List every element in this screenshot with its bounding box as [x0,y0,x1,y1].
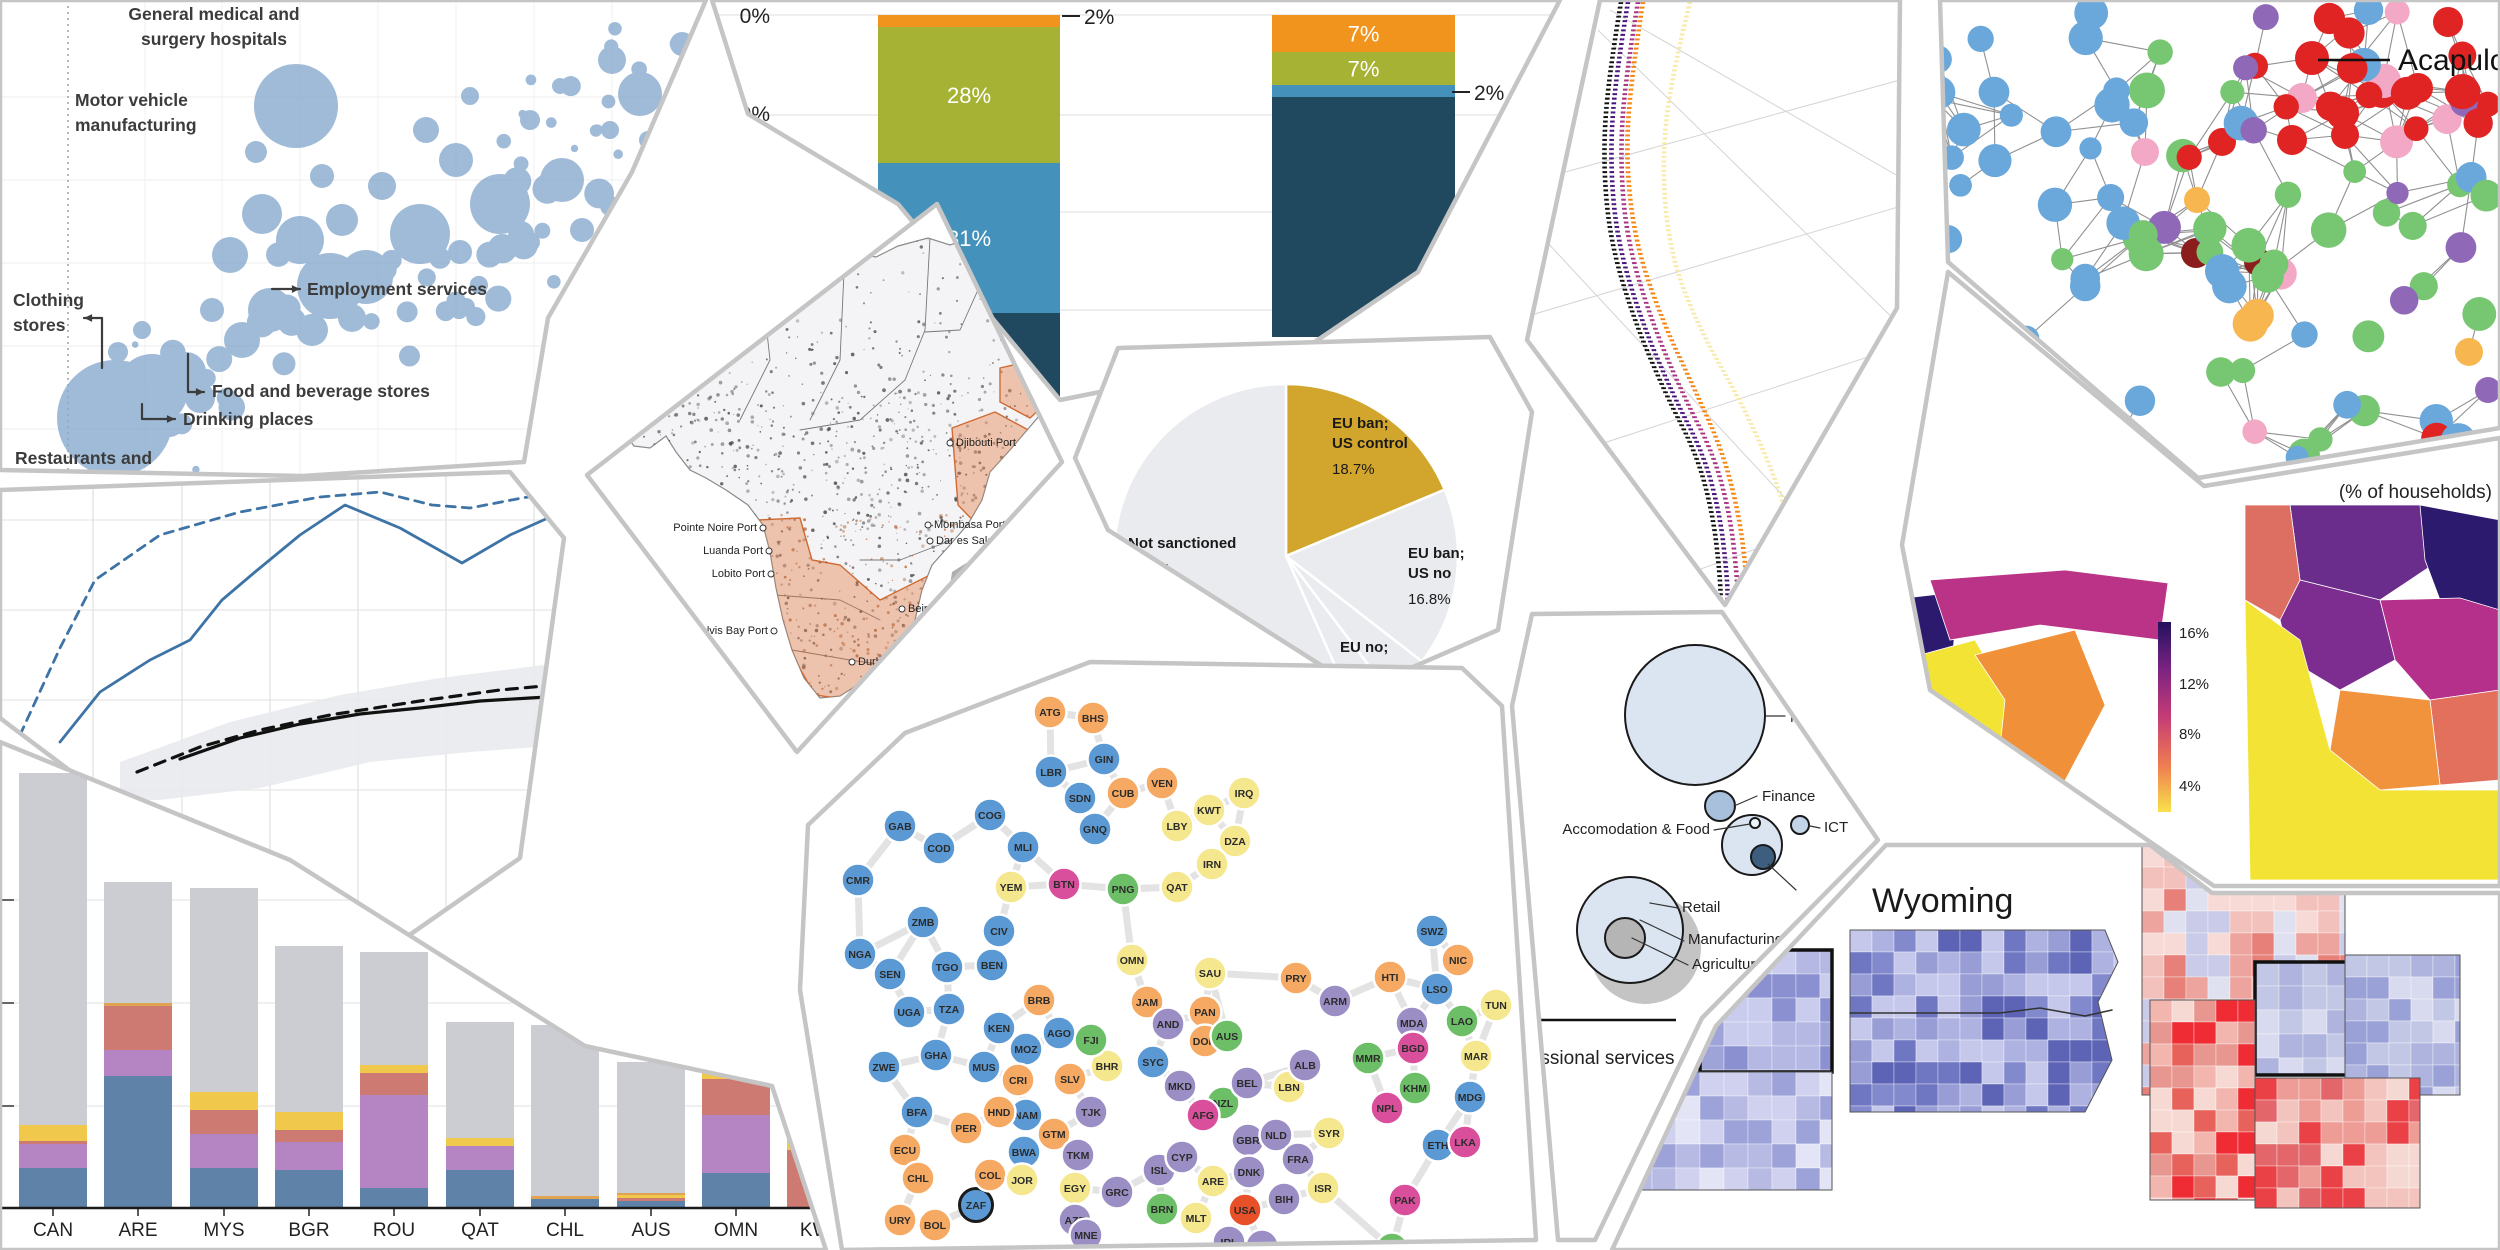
segment-label: 7% [1348,57,1380,82]
node-label: MLT [1186,1213,1207,1225]
bar-segment [531,1196,599,1199]
x-label: CHL [546,1220,584,1241]
highlight-speckle [856,724,858,726]
network-node [2051,248,2073,270]
highlight-speckle [994,571,996,573]
network-node [1978,144,2011,177]
bar-segment [275,1170,343,1208]
network-node [2253,4,2279,30]
node-label: FJI [1083,1035,1098,1047]
highlight-speckle [911,635,914,638]
highlight-speckle [910,690,912,692]
node-label: BHS [1082,713,1104,725]
node-label: USA [1234,1205,1257,1217]
node-label: PRY [1285,973,1306,985]
highlight-speckle [1006,636,1010,640]
network-node [2070,271,2100,301]
highlight-speckle [916,531,918,533]
network-node [2337,53,2368,84]
cell-background [1527,0,1900,605]
sector-bubble [1750,818,1760,828]
network-node [2475,377,2500,403]
highlight-speckle [960,654,963,657]
node-label: HTI [1382,972,1399,984]
highlight-speckle [869,518,871,520]
bubble [584,179,614,209]
highlight-speckle [919,533,921,535]
node-label: IRN [1203,859,1221,871]
highlight-speckle [867,633,869,635]
bubble [631,61,647,77]
bar-segment [702,1040,770,1053]
bubble [363,313,379,329]
bubble [272,352,295,375]
bar-segment [531,1199,599,1208]
legend-tick: 12% [2179,676,2209,693]
bubble [708,39,722,53]
network-label: Acapulco [2398,44,2500,77]
bubble [613,149,623,159]
bar-segment [446,1138,514,1146]
bar-segment [275,946,343,1112]
x-label: OMN [714,1220,758,1241]
chart-title: (% of households) [2339,482,2492,503]
bar-segment [446,1170,514,1208]
network-node [2242,419,2267,444]
highlight-speckle [945,514,948,517]
legend-tick: 4% [2179,778,2201,795]
network-node [2326,96,2359,129]
highlight-speckle [786,526,789,529]
highlight-speckle [917,639,920,642]
highlight-speckle [892,623,895,626]
highlight-speckle [922,677,924,679]
node-label: MKD [1168,1081,1192,1093]
node-label: MOZ [1014,1044,1038,1056]
highlight-speckle [870,592,872,594]
node-label: BIH [1275,1194,1293,1206]
network-node [2386,182,2408,204]
highlight-speckle [866,648,869,651]
node-label: PAN [1194,1007,1215,1019]
x-label: CAN [33,1220,73,1241]
highlight-speckle [923,674,924,675]
node-label: TGO [936,962,959,974]
bar-segment [190,888,258,1092]
highlight-speckle [859,520,861,522]
node-label: ECU [894,1145,916,1157]
node-label: BEN [981,960,1003,972]
annotation: surgery hospitals [141,29,287,49]
node-label: DNK [1238,1167,1261,1179]
highlight-speckle [867,721,869,723]
network-node [2464,108,2493,137]
node-label: HND [988,1107,1011,1119]
highlight-speckle [991,667,993,669]
highlight-speckle [815,644,818,647]
bar-segment [19,1141,87,1144]
country-border [668,300,702,392]
segment-label: 7% [1348,22,1380,47]
node-label: BRB [1028,995,1051,1007]
highlight-speckle [877,605,880,608]
highlight-speckle [823,623,827,627]
port-label: Luanda Port [703,545,763,557]
port-dot [760,525,766,531]
network-node [2120,108,2148,136]
highlight-speckle [1004,572,1007,575]
highlight-speckle [834,614,837,617]
bar-segment [190,1134,258,1168]
bubble [242,194,282,234]
highlight-speckle [977,625,978,626]
highlight-speckle [848,708,851,711]
bubble [570,218,594,242]
node-label: AGO [1047,1028,1071,1040]
bar-segment [275,1130,343,1142]
network-node [2220,80,2244,104]
node-label: QAT [1166,882,1188,894]
bar-segment [702,1173,770,1208]
node-label: KHM [1403,1083,1427,1095]
bar-segment [446,1146,514,1170]
sector-bubble [1751,845,1775,869]
node-label: SEN [879,969,901,981]
highlight-speckle [864,697,868,701]
bubble [133,321,151,339]
highlight-speckle [808,604,811,607]
highlight-speckle [807,536,809,538]
port-dot [925,522,931,528]
highlight-speckle [911,563,913,565]
node-label: GHA [924,1050,948,1062]
sector-label: Retail [1682,899,1720,916]
highlight-speckle [790,526,792,528]
bar-segment [702,1115,770,1173]
node-label: SWZ [1420,926,1444,938]
bubble [448,240,472,264]
highlight-speckle [965,624,966,625]
pie-value: 18.7% [1332,461,1375,478]
port-dot [771,628,777,634]
map-title: Wyoming [1872,882,2013,920]
pie-label: EU ban; [1408,545,1465,562]
highlight-speckle [992,626,994,628]
node-label: SDN [1069,793,1091,805]
bar-segment [104,1050,172,1076]
highlight-speckle [855,707,856,708]
highlight-speckle [966,689,970,693]
highlight-speckle [931,676,933,678]
bubble [160,340,186,366]
highlight-speckle [821,688,823,690]
highlight-speckle [798,566,800,568]
highlight-speckle [803,649,806,652]
network-node [2343,160,2366,183]
network-node [2233,306,2268,341]
bubble [132,341,139,348]
highlight-speckle [891,718,894,721]
sector-bubble [1605,918,1645,958]
county-tiles [2255,1078,2431,1210]
highlight-speckle [954,622,957,625]
bar-segment [19,1144,87,1168]
highlight-speckle [809,557,812,560]
highlight-speckle [882,524,884,526]
highlight-speckle [830,664,833,667]
highlight-speckle [798,539,801,542]
sector-label: ICT [1824,819,1848,836]
node-label: COG [978,810,1002,822]
highlight-speckle [895,527,898,530]
node-label: GIN [1095,754,1114,766]
highlight-speckle [890,604,892,606]
node-label: ALB [1294,1060,1316,1072]
node-label: ZWE [872,1062,895,1074]
highlight-speckle [809,682,811,684]
highlight-speckle [904,691,907,694]
bubble [496,134,511,149]
highlight-speckle [832,655,833,656]
highlight-speckle [903,578,907,582]
network-node [2274,94,2299,119]
bubble [413,117,439,143]
bar-segment [275,1112,343,1130]
bar-segment [1272,85,1455,97]
highlight-speckle [903,598,905,600]
network-node [2291,321,2317,347]
highlight-speckle [922,636,924,638]
network-node [2446,232,2477,263]
port-dot [899,606,905,612]
highlight-speckle [921,544,924,547]
bar-segment [104,1003,172,1006]
bar-segment [360,1073,428,1095]
network-node [1924,45,1952,73]
highlight-speckle [972,582,974,584]
highlight-speckle [886,563,888,565]
network-node [2295,41,2329,75]
highlight-speckle [824,686,825,687]
highlight-speckle [969,568,971,570]
cell-distribution-curves [1480,0,1905,620]
highlight-speckle [782,531,783,532]
bar-segment [1272,97,1455,337]
node-label: KEN [988,1023,1010,1035]
highlight-speckle [952,628,955,631]
segment-label: 28% [947,83,991,108]
highlight-speckle [980,593,982,595]
bubble [532,174,562,204]
bubble [429,247,450,268]
node-label: SAU [1199,968,1221,980]
bubble [436,301,456,321]
node-label: BRN [1151,1204,1174,1216]
bubble [368,172,396,200]
network-node [1947,113,1981,147]
pie-value: 16.8% [1408,591,1451,608]
callout-label: 2% [1084,6,1114,29]
node-label: TKM [1067,1150,1090,1162]
edge [1938,59,1939,92]
highlight-speckle [789,618,792,621]
highlight-speckle [966,603,968,605]
highlight-speckle [843,535,845,537]
bubble [170,374,194,398]
highlight-speckle [787,608,789,610]
node-label: MMR [1355,1053,1380,1065]
highlight-speckle [924,676,926,678]
node-label: BFA [907,1107,928,1119]
highlight-speckle [885,646,888,649]
bar-segment [531,1025,599,1196]
highlight-speckle [833,630,835,632]
network-node [2404,116,2429,141]
network-node [2079,137,2101,159]
node-label: BHR [1096,1061,1119,1073]
pie-label: US control [1332,435,1408,452]
node-label: SYC [1142,1057,1164,1069]
annotation: Employment services [307,279,487,299]
highlight-speckle [954,698,956,700]
highlight-speckle [989,567,992,570]
node-label: MLI [1014,842,1032,854]
node-label: TUN [1485,1000,1507,1012]
highlight-speckle [788,583,791,586]
network-node [2177,145,2202,170]
highlight-speckle [758,717,761,720]
annotation: General medical and [128,4,299,24]
bubble [397,301,418,322]
node-label: MAR [1464,1051,1488,1063]
edge [1934,92,1939,99]
bubble [618,72,662,116]
network-node [2000,104,2023,127]
bubble [568,89,574,95]
highlight-speckle [941,516,943,518]
bar-segment [104,882,172,1003]
highlight-speckle [844,607,846,609]
highlight-speckle [955,707,956,708]
highlight-speckle [940,619,942,621]
bar-segment [19,1168,87,1208]
bar-segment [19,773,87,1125]
node-label: CRI [1009,1075,1027,1087]
highlight-speckle [855,520,857,522]
highlight-speckle [924,653,925,654]
highlight-speckle [932,674,934,676]
highlight-speckle [904,566,907,569]
cell-industry-bubbles: General medical andsurgery hospitalsMoto… [0,0,723,510]
network-node [1922,76,1955,109]
highlight-speckle [970,679,972,681]
bubble [476,242,502,268]
bubble [338,304,366,332]
bubble [273,295,300,322]
highlight-speckle [850,648,852,650]
highlight-speckle [862,618,865,621]
bubble [604,39,618,53]
node-label: BGD [1401,1043,1425,1055]
network-node [1979,77,2010,108]
highlight-speckle [898,690,900,692]
bar-segment [878,15,1060,27]
bubble [372,257,397,282]
bubble [547,275,561,289]
annotation: Restaurants and [15,448,152,468]
bubble [206,346,232,372]
network-node [2097,184,2124,211]
bubble [212,237,248,273]
county-tiles [2150,1000,2260,1220]
network-node [2131,138,2159,166]
highlight-speckle [935,707,936,708]
highlight-speckle [814,636,815,637]
node-label: GRC [1105,1187,1129,1199]
bubble [602,95,616,109]
bar-segment [617,1193,685,1195]
bubble [485,286,511,312]
x-label: MYS [203,1220,244,1241]
x-label: ROU [373,1220,415,1241]
highlight-speckle [822,516,823,517]
highlight-speckle [821,543,822,544]
node-label: ISR [1314,1183,1332,1195]
port-label: Mombasa Port [934,519,1006,531]
highlight-speckle [990,651,992,653]
highlight-speckle [823,540,824,541]
bar-segment [190,1092,258,1110]
annotation: manufacturing [75,115,197,135]
annotation: stores [13,315,66,335]
node-label: LBY [1167,821,1188,833]
network-node [2433,7,2463,37]
highlight-speckle [824,598,826,600]
highlight-speckle [971,654,973,656]
node-label: MDA [1400,1018,1424,1030]
node-label: COD [927,843,951,855]
node-label: AFG [1192,1110,1214,1122]
node-label: GNQ [1083,824,1107,836]
node-label: NPL [1377,1103,1399,1115]
pie-label: EU no; [1340,639,1388,656]
bubble [399,345,420,366]
highlight-speckle [852,649,855,652]
node-label: GAB [888,821,912,833]
node-label: SYR [1318,1128,1340,1140]
sector-label: Finance [1762,788,1815,805]
highlight-speckle [912,647,913,648]
node-label: ETH [1428,1140,1449,1152]
highlight-speckle [767,515,768,516]
highlight-speckle [983,556,986,559]
network-node [2333,391,2361,419]
bubble [423,232,433,242]
sector-bubble [1791,816,1809,834]
node-label: LAO [1451,1016,1473,1028]
collage-canvas: General medical andsurgery hospitalsMoto… [0,0,2500,1250]
port-dot [766,548,772,554]
node-label: LBN [1278,1082,1300,1094]
highlight-speckle [803,518,806,521]
node-label: BOL [924,1220,947,1232]
highlight-speckle [842,530,845,533]
highlight-speckle [881,726,882,727]
node-label: TJK [1081,1107,1101,1119]
node-label: BEL [1237,1078,1259,1090]
network-node [1968,26,1994,52]
network-node [2147,39,2172,64]
